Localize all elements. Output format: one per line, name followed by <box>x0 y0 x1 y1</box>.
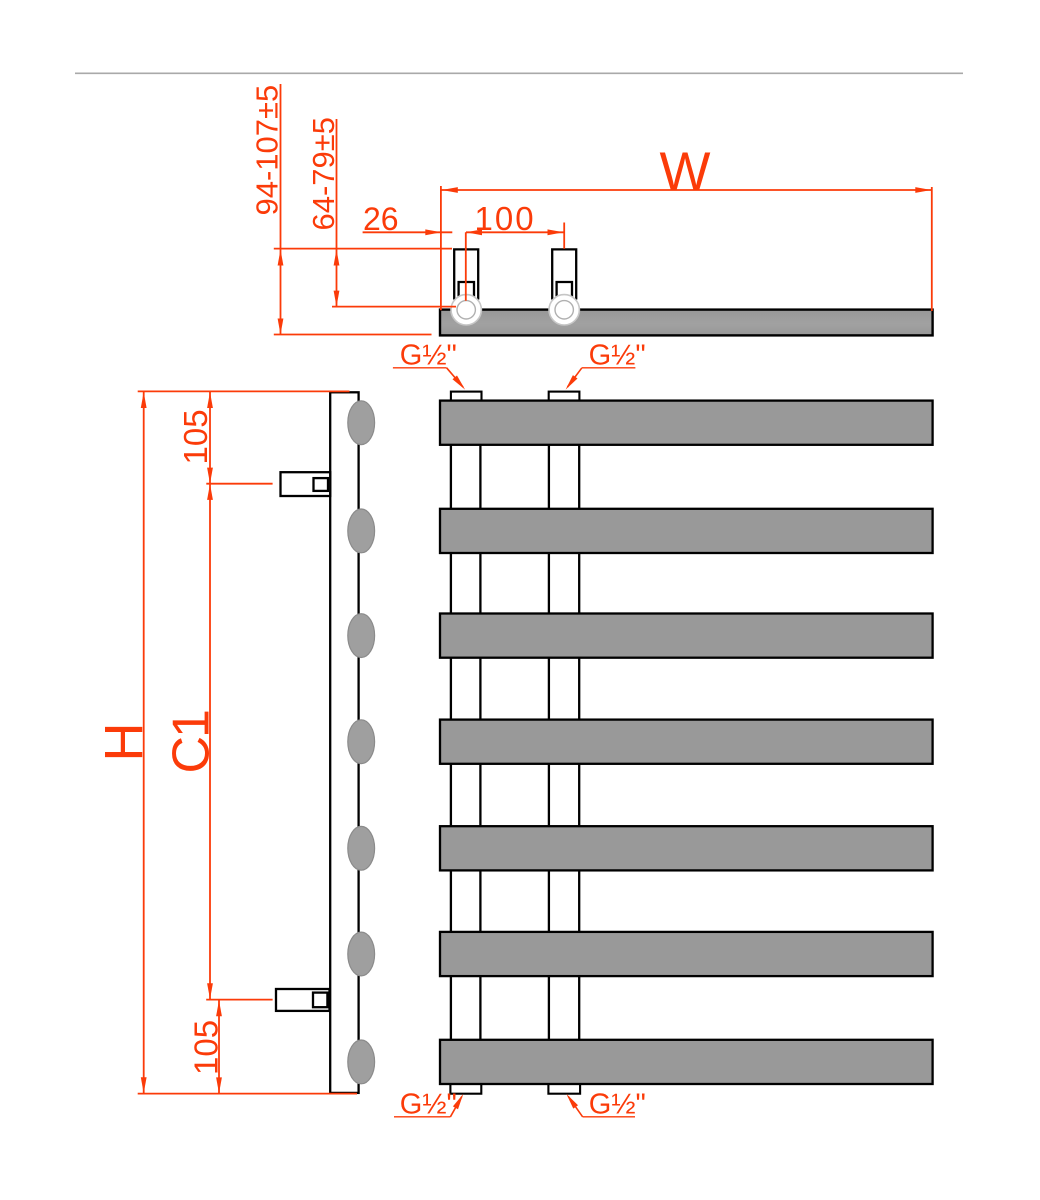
svg-text:26: 26 <box>363 201 399 237</box>
svg-text:C1: C1 <box>163 711 221 774</box>
svg-text:W: W <box>660 142 711 202</box>
svg-text:G½": G½" <box>589 1088 646 1120</box>
svg-text:H: H <box>94 723 154 762</box>
svg-text:105: 105 <box>177 409 214 464</box>
svg-text:105: 105 <box>188 1020 225 1075</box>
svg-text:64-79±5: 64-79±5 <box>306 117 341 231</box>
svg-text:G½": G½" <box>589 339 646 371</box>
svg-text:94-107±5: 94-107±5 <box>250 85 285 216</box>
svg-text:G½": G½" <box>400 1088 457 1120</box>
svg-text:G½": G½" <box>400 339 457 371</box>
svg-text:100: 100 <box>475 200 536 237</box>
